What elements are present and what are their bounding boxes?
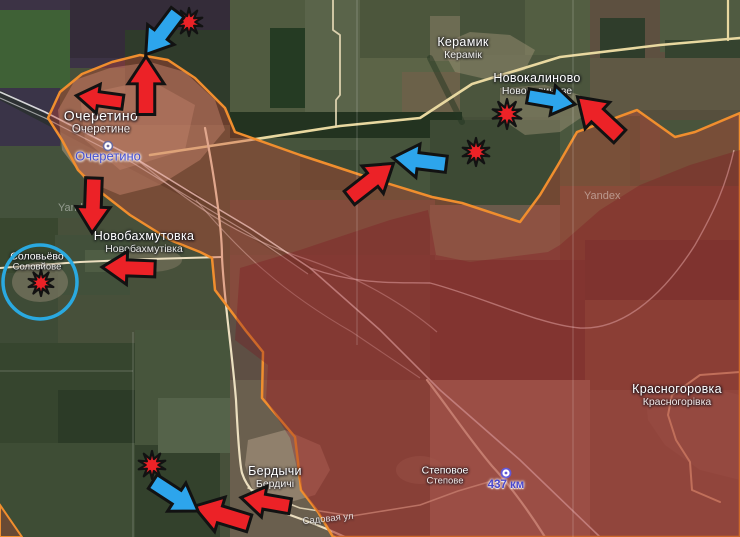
road-marker-pin-icon (502, 469, 511, 478)
map-base (0, 0, 740, 537)
railway-station-icon (104, 142, 113, 151)
satellite-map-canvas[interactable]: Очеретино 437 км Садовая ул Yandex Yande… (0, 0, 740, 537)
